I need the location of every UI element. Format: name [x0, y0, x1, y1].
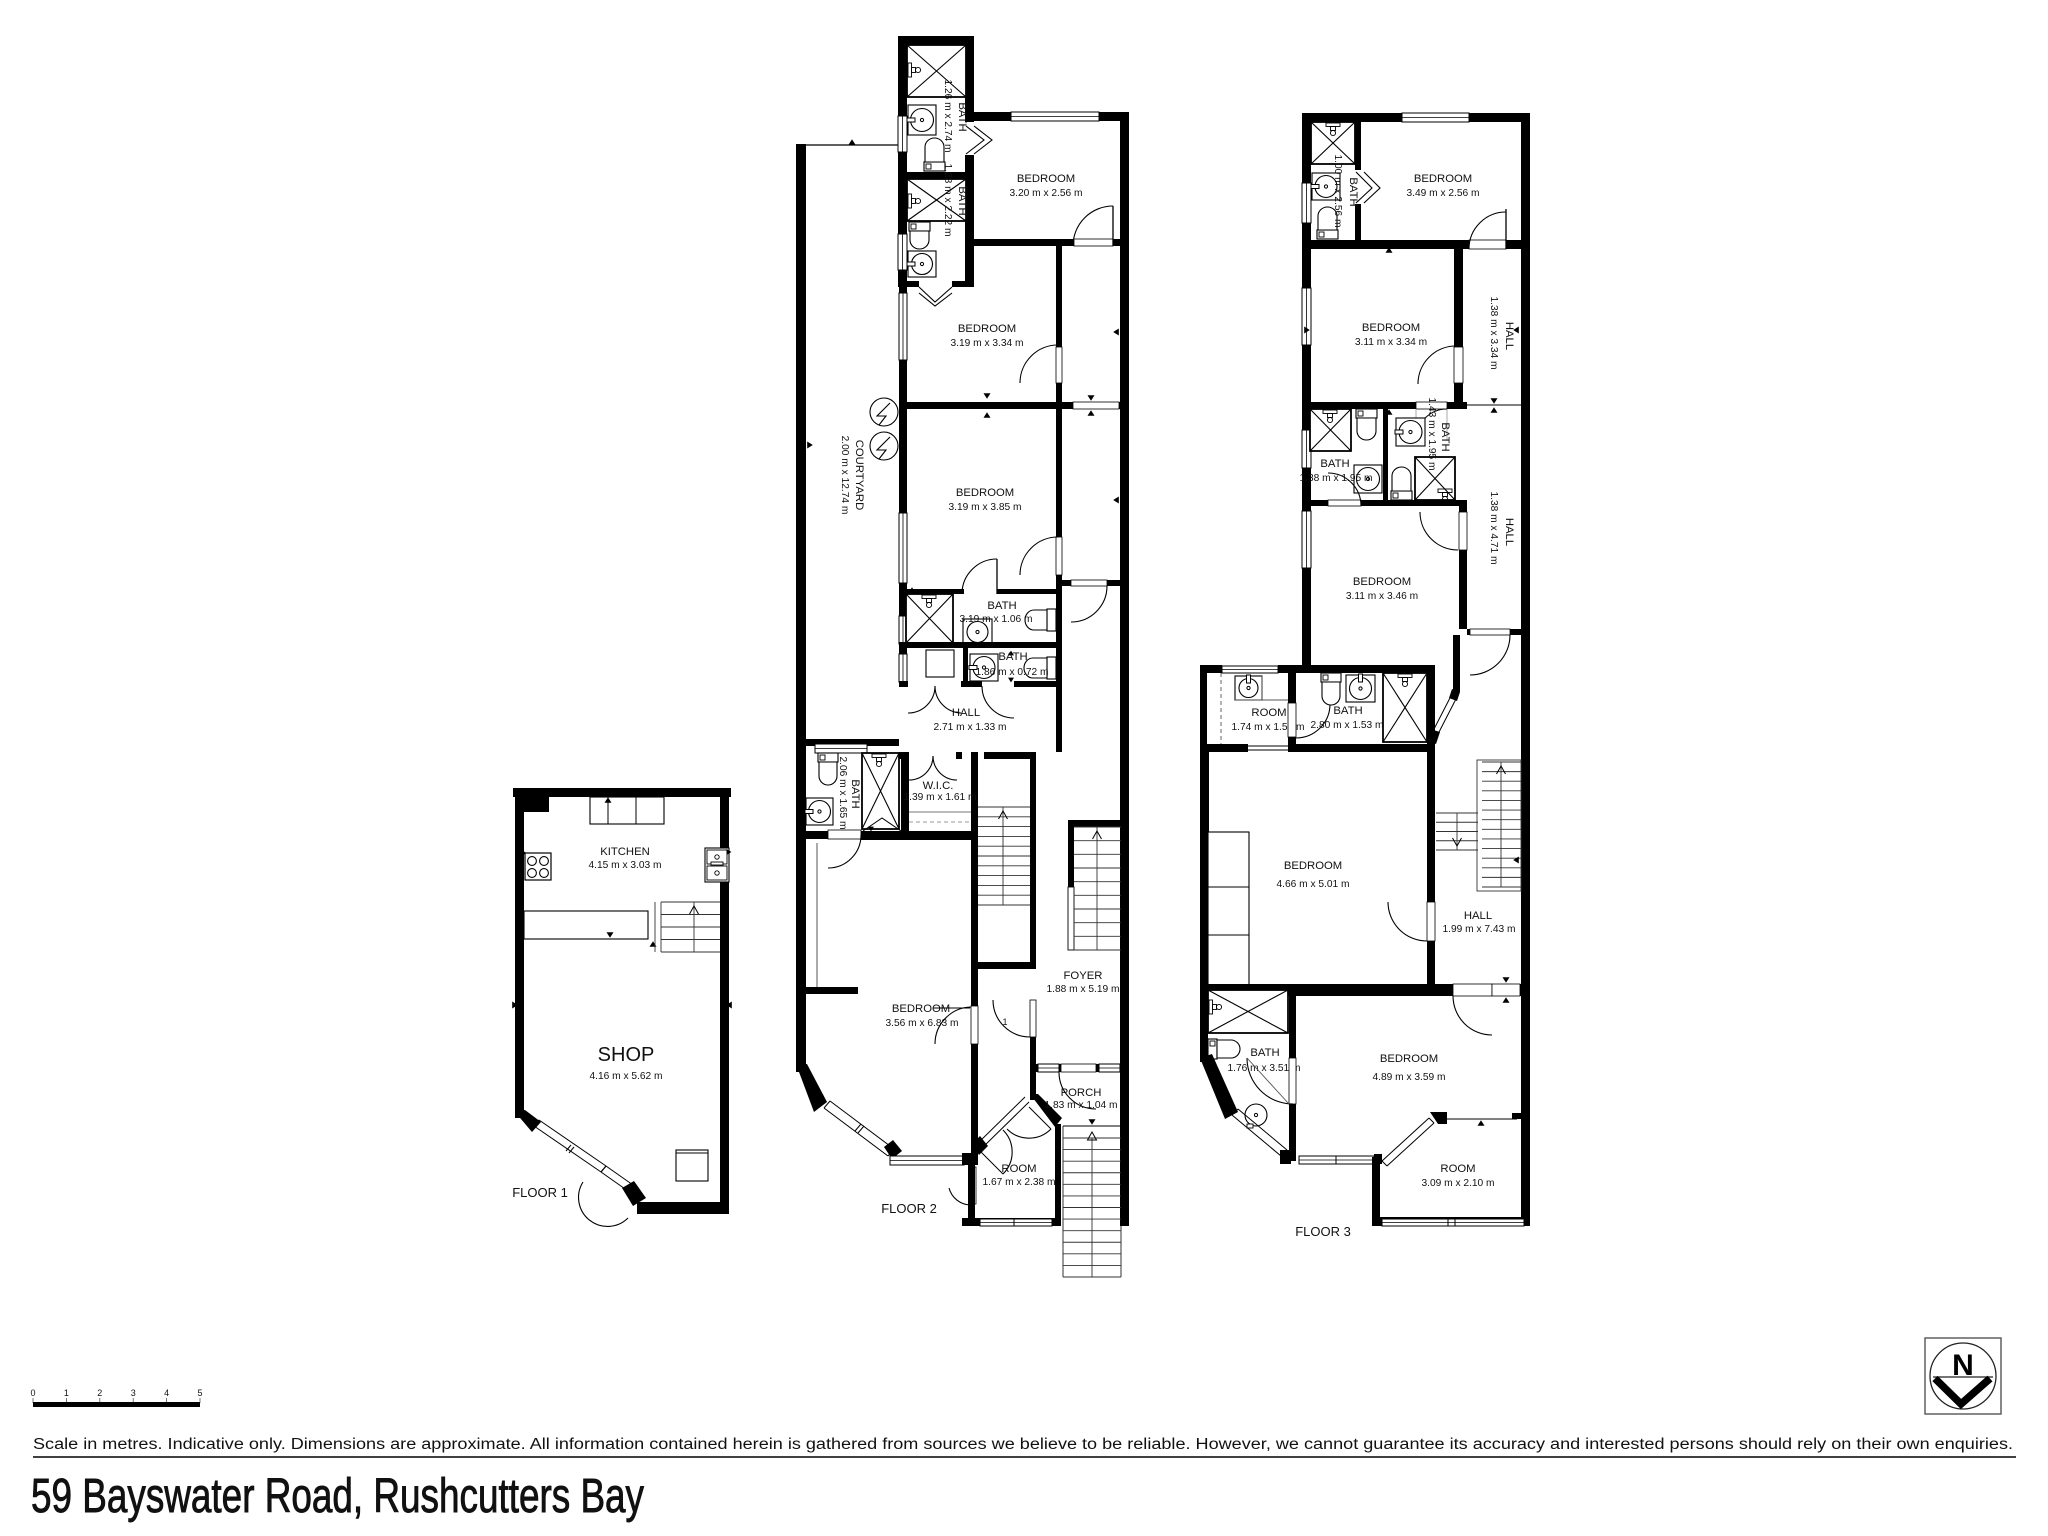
svg-text:2.06 m x 1.65 m: 2.06 m x 1.65 m: [837, 756, 848, 829]
svg-text:1: 1: [1002, 1017, 1007, 1027]
svg-text:BATH: BATH: [849, 779, 861, 808]
svg-text:1.86 m x 0.72 m: 1.86 m x 0.72 m: [975, 667, 1048, 678]
svg-text:2.71 m x 1.33 m: 2.71 m x 1.33 m: [933, 722, 1006, 733]
svg-text:1.00 m x 2.56 m: 1.00 m x 2.56 m: [1332, 154, 1343, 227]
svg-text:BATH: BATH: [1320, 458, 1349, 470]
svg-text:BATH: BATH: [987, 600, 1016, 612]
svg-text:1.39 m x 1.61 m: 1.39 m x 1.61 m: [903, 792, 976, 803]
svg-text:BEDROOM: BEDROOM: [1353, 576, 1411, 588]
svg-text:Scale in metres. Indicative on: Scale in metres. Indicative only. Dimens…: [33, 1436, 2013, 1453]
svg-text:1.43 m x 1.95 m: 1.43 m x 1.95 m: [1426, 397, 1437, 470]
svg-text:SHOP: SHOP: [598, 1044, 655, 1066]
svg-text:PORCH: PORCH: [1061, 1087, 1102, 1099]
svg-text:W.I.C.: W.I.C.: [923, 780, 954, 792]
svg-text:2: 2: [97, 1388, 102, 1398]
svg-text:HALL: HALL: [952, 707, 980, 719]
svg-text:BATH: BATH: [1439, 422, 1451, 451]
svg-text:BEDROOM: BEDROOM: [1362, 322, 1420, 334]
svg-text:1.26 m x 2.74 m: 1.26 m x 2.74 m: [942, 79, 953, 152]
svg-text:ROOM: ROOM: [1440, 1163, 1475, 1175]
svg-text:BEDROOM: BEDROOM: [1414, 173, 1472, 185]
svg-text:2.80 m x 1.53 m: 2.80 m x 1.53 m: [1310, 720, 1383, 731]
svg-text:3: 3: [131, 1388, 136, 1398]
svg-text:HALL: HALL: [1503, 322, 1515, 350]
svg-text:BATH: BATH: [998, 651, 1027, 663]
svg-text:3.56 m x 6.83 m: 3.56 m x 6.83 m: [885, 1018, 958, 1029]
svg-text:3.20 m x 2.56 m: 3.20 m x 2.56 m: [1009, 188, 1082, 199]
svg-text:3.11 m x 3.46 m: 3.11 m x 3.46 m: [1346, 591, 1418, 602]
svg-text:3.09 m x 2.10 m: 3.09 m x 2.10 m: [1421, 1178, 1494, 1189]
svg-text:4: 4: [164, 1388, 169, 1398]
svg-text:HALL: HALL: [1503, 518, 1515, 546]
svg-text:1.99 m x 7.43 m: 1.99 m x 7.43 m: [1442, 924, 1515, 935]
svg-text:BATH: BATH: [956, 186, 968, 215]
svg-text:5: 5: [197, 1388, 202, 1398]
svg-text:1: 1: [64, 1388, 69, 1398]
svg-text:FLOOR 1: FLOOR 1: [512, 1185, 568, 1200]
svg-text:1.67 m x 2.38 m: 1.67 m x 2.38 m: [982, 1177, 1055, 1188]
svg-text:COURTYARD: COURTYARD: [853, 440, 865, 511]
svg-text:4.16 m x 5.62 m: 4.16 m x 5.62 m: [589, 1071, 662, 1082]
svg-text:4.15 m x 3.03 m: 4.15 m x 3.03 m: [588, 860, 661, 871]
svg-text:FLOOR 2: FLOOR 2: [881, 1201, 937, 1216]
svg-text:4.66 m x 5.01 m: 4.66 m x 5.01 m: [1276, 879, 1349, 890]
svg-text:BATH: BATH: [1347, 177, 1359, 206]
svg-text:BEDROOM: BEDROOM: [958, 323, 1016, 335]
svg-text:59 Bayswater Road, Rushcutters: 59 Bayswater Road, Rushcutters Bay: [31, 1469, 645, 1523]
svg-text:3.19 m x 1.06 m: 3.19 m x 1.06 m: [959, 614, 1032, 625]
svg-text:2.00 m x 12.74 m: 2.00 m x 12.74 m: [839, 436, 850, 515]
svg-text:ROOM: ROOM: [1251, 707, 1286, 719]
svg-text:4.89 m x 3.59 m: 4.89 m x 3.59 m: [1372, 1072, 1445, 1083]
svg-text:1.38 m x 1.95 m: 1.38 m x 1.95 m: [1299, 473, 1372, 484]
svg-text:BEDROOM: BEDROOM: [892, 1003, 950, 1015]
svg-text:ROOM: ROOM: [1001, 1163, 1036, 1175]
svg-text:KITCHEN: KITCHEN: [600, 846, 650, 858]
svg-text:3.49 m x 2.56 m: 3.49 m x 2.56 m: [1406, 188, 1479, 199]
svg-text:1.83 m x 1.04 m: 1.83 m x 1.04 m: [1044, 1100, 1117, 1111]
svg-text:1.38 m x 3.34 m: 1.38 m x 3.34 m: [1488, 296, 1499, 369]
svg-text:FOYER: FOYER: [1064, 970, 1103, 982]
svg-text:1.38 m x 4.71 m: 1.38 m x 4.71 m: [1488, 491, 1499, 564]
svg-text:1.88 m x 5.19 m: 1.88 m x 5.19 m: [1046, 984, 1119, 995]
svg-text:FLOOR 3: FLOOR 3: [1295, 1224, 1351, 1239]
svg-text:BEDROOM: BEDROOM: [956, 487, 1014, 499]
svg-text:BEDROOM: BEDROOM: [1380, 1053, 1438, 1065]
svg-text:1.28 m x 2.22 m: 1.28 m x 2.22 m: [942, 163, 953, 236]
svg-text:3.11 m x 3.34 m: 3.11 m x 3.34 m: [1355, 337, 1427, 348]
svg-text:HALL: HALL: [1464, 910, 1492, 922]
svg-text:BEDROOM: BEDROOM: [1284, 860, 1342, 872]
svg-text:BATH: BATH: [1333, 705, 1362, 717]
svg-text:BEDROOM: BEDROOM: [1017, 173, 1075, 185]
svg-text:BATH: BATH: [1250, 1047, 1279, 1059]
svg-text:3.19 m x 3.85 m: 3.19 m x 3.85 m: [948, 502, 1021, 513]
svg-text:3.19 m x 3.34 m: 3.19 m x 3.34 m: [950, 338, 1023, 349]
svg-text:0: 0: [30, 1388, 35, 1398]
